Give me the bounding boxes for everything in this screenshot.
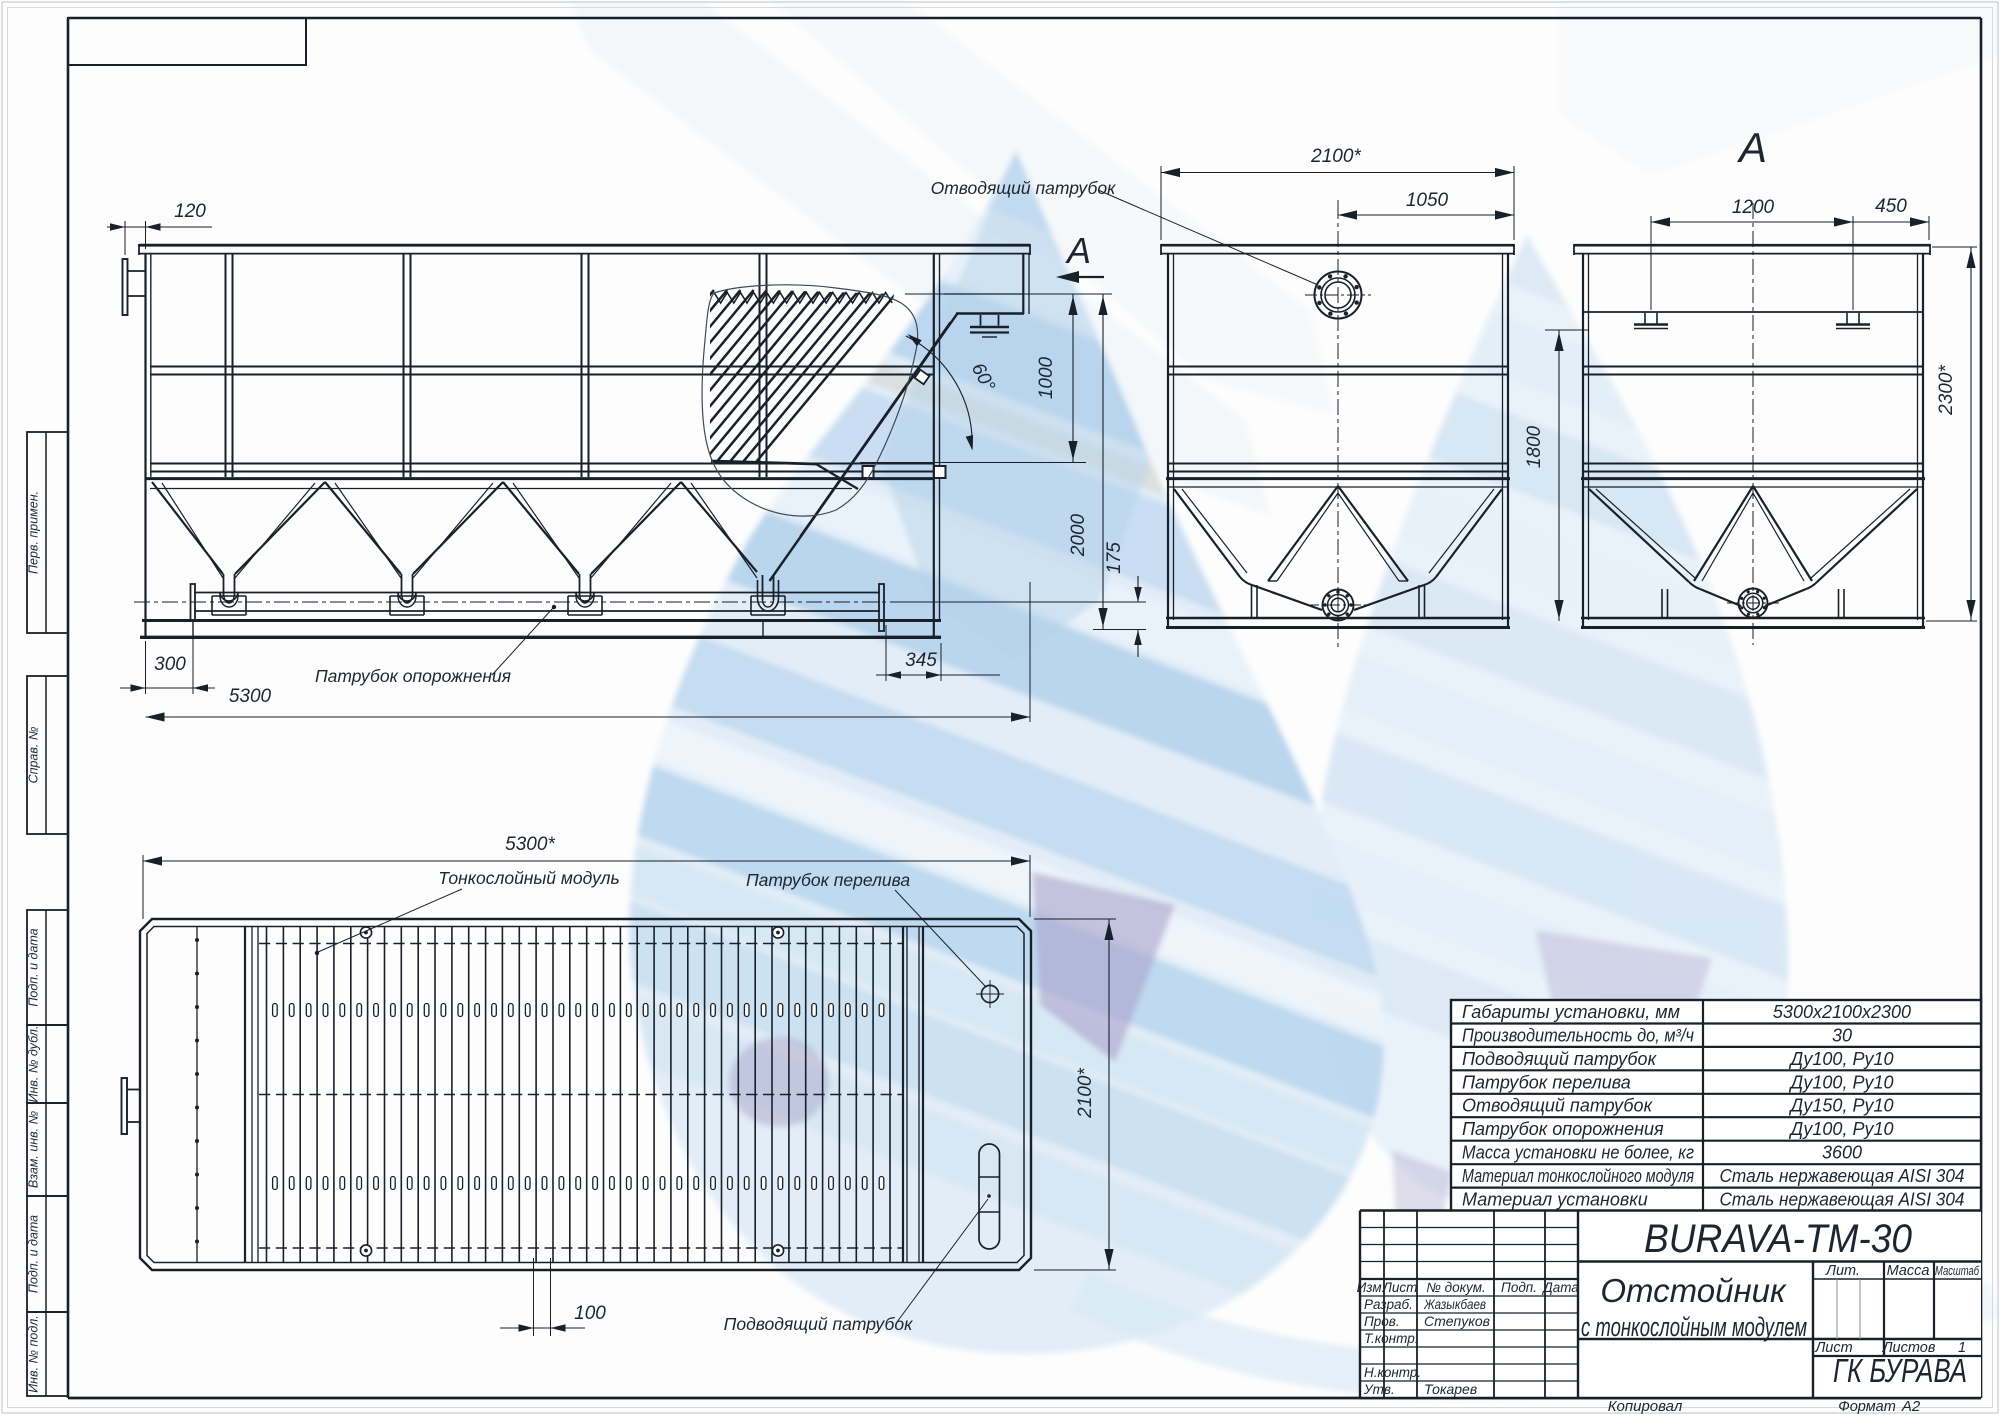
svg-text:Справ. №: Справ. № [27, 726, 41, 783]
svg-text:30: 30 [1832, 1025, 1852, 1045]
svg-text:Взам. инв. №: Взам. инв. № [27, 1110, 41, 1188]
svg-text:2100*: 2100* [1075, 1068, 1096, 1119]
svg-text:А2: А2 [1901, 1398, 1921, 1415]
svg-text:Инв. № дубл.: Инв. № дубл. [27, 1026, 41, 1103]
svg-text:Подп.: Подп. [1501, 1280, 1537, 1295]
svg-text:Масса: Масса [1887, 1263, 1930, 1279]
svg-text:Подп. и дата: Подп. и дата [27, 928, 41, 1006]
svg-text:Ду100, Ру10: Ду100, Ру10 [1789, 1049, 1894, 1069]
svg-text:120: 120 [174, 201, 206, 222]
svg-text:1200: 1200 [1732, 197, 1775, 218]
svg-text:Масса установки не более, кг: Масса установки не более, кг [1462, 1143, 1694, 1163]
svg-text:Изм.: Изм. [1357, 1280, 1386, 1295]
svg-text:Материал установки: Материал установки [1462, 1190, 1648, 1210]
svg-text:Лит.: Лит. [1825, 1263, 1860, 1279]
svg-text:Тонкослойный модуль: Тонкослойный модуль [438, 868, 620, 888]
svg-text:Отводящий патрубок: Отводящий патрубок [1462, 1096, 1654, 1116]
svg-text:Подп. и дата: Подп. и дата [27, 1215, 41, 1293]
svg-text:2100*: 2100* [1310, 146, 1361, 167]
svg-text:Лист: Лист [1382, 1280, 1418, 1295]
svg-text:Т.контр.: Т.контр. [1364, 1331, 1418, 1346]
svg-text:Утв.: Утв. [1363, 1382, 1395, 1397]
svg-text:100: 100 [574, 1303, 606, 1324]
svg-text:1800: 1800 [1524, 425, 1545, 468]
svg-text:BURAVA-TM-30: BURAVA-TM-30 [1644, 1217, 1912, 1261]
svg-text:Патрубок перелива: Патрубок перелива [1462, 1072, 1631, 1092]
svg-text:5300х2100х2300: 5300х2100х2300 [1773, 1002, 1911, 1022]
svg-text:Подводящий патрубок: Подводящий патрубок [724, 1314, 913, 1334]
svg-text:Н.контр.: Н.контр. [1364, 1365, 1421, 1380]
svg-text:Отстойник: Отстойник [1600, 1272, 1787, 1309]
svg-text:Токарев: Токарев [1424, 1381, 1477, 1397]
svg-text:Габариты установки, мм: Габариты установки, мм [1462, 1002, 1680, 1022]
svg-text:Ду100, Ру10: Ду100, Ру10 [1789, 1119, 1894, 1139]
svg-text:2000: 2000 [1068, 513, 1089, 557]
svg-text:А: А [1736, 124, 1767, 171]
svg-text:Материал тонкослойного модуля: Материал тонкослойного модуля [1462, 1166, 1694, 1186]
svg-text:Патрубок опорожнения: Патрубок опорожнения [1462, 1119, 1664, 1139]
svg-text:345: 345 [905, 650, 937, 671]
svg-text:Производительность до, м³/ч: Производительность до, м³/ч [1462, 1025, 1694, 1045]
svg-text:Подводящий патрубок: Подводящий патрубок [1462, 1049, 1658, 1069]
svg-text:175: 175 [1104, 542, 1125, 574]
svg-text:Инв. № подл.: Инв. № подл. [27, 1315, 41, 1393]
svg-text:450: 450 [1875, 196, 1907, 217]
svg-text:с тонкослойным модулем: с тонкослойным модулем [1581, 1312, 1807, 1342]
svg-text:А: А [1065, 230, 1091, 271]
svg-text:№ докум.: № докум. [1426, 1280, 1485, 1295]
svg-text:Копировал: Копировал [1608, 1398, 1683, 1415]
svg-text:Разраб.: Разраб. [1364, 1297, 1413, 1312]
svg-text:Формат: Формат [1838, 1399, 1896, 1415]
svg-text:Ду100, Ру10: Ду100, Ру10 [1789, 1072, 1894, 1092]
svg-text:Перв. примен.: Перв. примен. [27, 491, 41, 574]
svg-text:Дата: Дата [1541, 1280, 1579, 1295]
svg-text:3600: 3600 [1822, 1143, 1862, 1163]
svg-text:Сталь нержавеющая AISI 304: Сталь нержавеющая AISI 304 [1720, 1190, 1965, 1210]
svg-text:Масштаб: Масштаб [1935, 1263, 1979, 1278]
svg-text:Пров.: Пров. [1364, 1314, 1400, 1329]
svg-text:Отводящий патрубок: Отводящий патрубок [931, 178, 1117, 198]
svg-text:Ду150, Ру10: Ду150, Ру10 [1789, 1096, 1894, 1116]
svg-text:1050: 1050 [1406, 190, 1449, 211]
svg-text:Патрубок перелива: Патрубок перелива [746, 870, 910, 890]
svg-text:Жазыкбаев: Жазыкбаев [1423, 1296, 1486, 1312]
svg-text:5300*: 5300* [505, 834, 555, 855]
svg-text:Патрубок опорожнения: Патрубок опорожнения [315, 666, 511, 686]
svg-text:Сталь нержавеющая AISI 304: Сталь нержавеющая AISI 304 [1720, 1166, 1965, 1186]
svg-text:2300*: 2300* [1936, 365, 1957, 416]
svg-text:5300: 5300 [229, 686, 272, 707]
svg-text:ГК БУРАВА: ГК БУРАВА [1833, 1352, 1967, 1389]
svg-text:300: 300 [154, 654, 186, 675]
svg-text:Степуков: Степуков [1424, 1313, 1490, 1329]
svg-text:1000: 1000 [1036, 356, 1057, 399]
